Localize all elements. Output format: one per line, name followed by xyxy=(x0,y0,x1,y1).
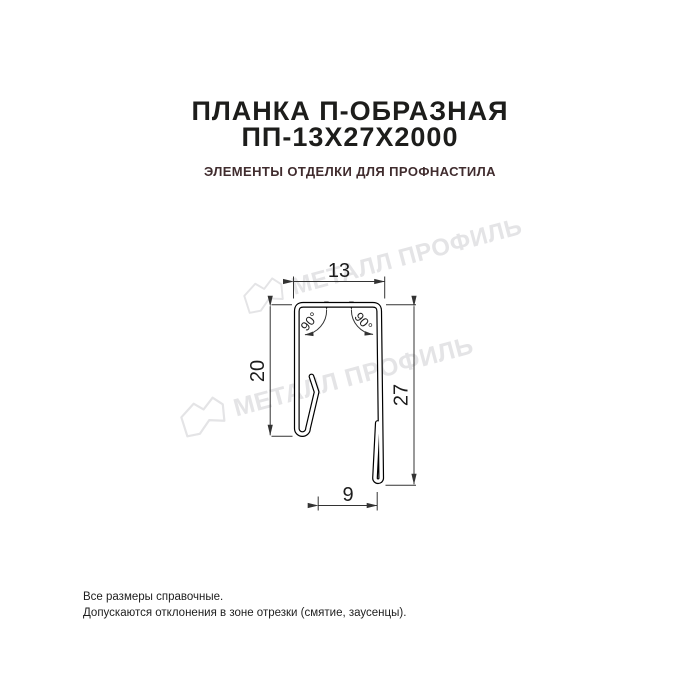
footer-notes: Все размеры справочные. Допускаются откл… xyxy=(83,590,406,621)
product-drawing-page: ПЛАНКА П-ОБРАЗНАЯ ПП-13Х27Х2000 ЭЛЕМЕНТЫ… xyxy=(0,0,700,700)
dimension-label-width: 13 xyxy=(328,260,350,282)
dimension-left-height-20 xyxy=(270,305,292,437)
footer-note-line1: Все размеры справочные. xyxy=(83,590,406,606)
product-title-line1: ПЛАНКА П-ОБРАЗНАЯ xyxy=(0,98,700,124)
dimension-label-bottom: 9 xyxy=(342,484,353,506)
dimension-label-left-height: 20 xyxy=(247,360,269,382)
product-subtitle: ЭЛЕМЕНТЫ ОТДЕЛКИ ДЛЯ ПРОФНАСТИЛА xyxy=(0,164,700,179)
angle-label-right: 90° xyxy=(351,309,375,334)
header: ПЛАНКА П-ОБРАЗНАЯ ПП-13Х27Х2000 ЭЛЕМЕНТЫ… xyxy=(0,98,700,179)
dimension-label-right-height: 27 xyxy=(390,384,412,406)
angle-label-left: 90° xyxy=(297,309,321,334)
product-title-line2: ПП-13Х27Х2000 xyxy=(0,124,700,150)
footer-note-line2: Допускаются отклонения в зоне отрезки (с… xyxy=(83,606,406,622)
